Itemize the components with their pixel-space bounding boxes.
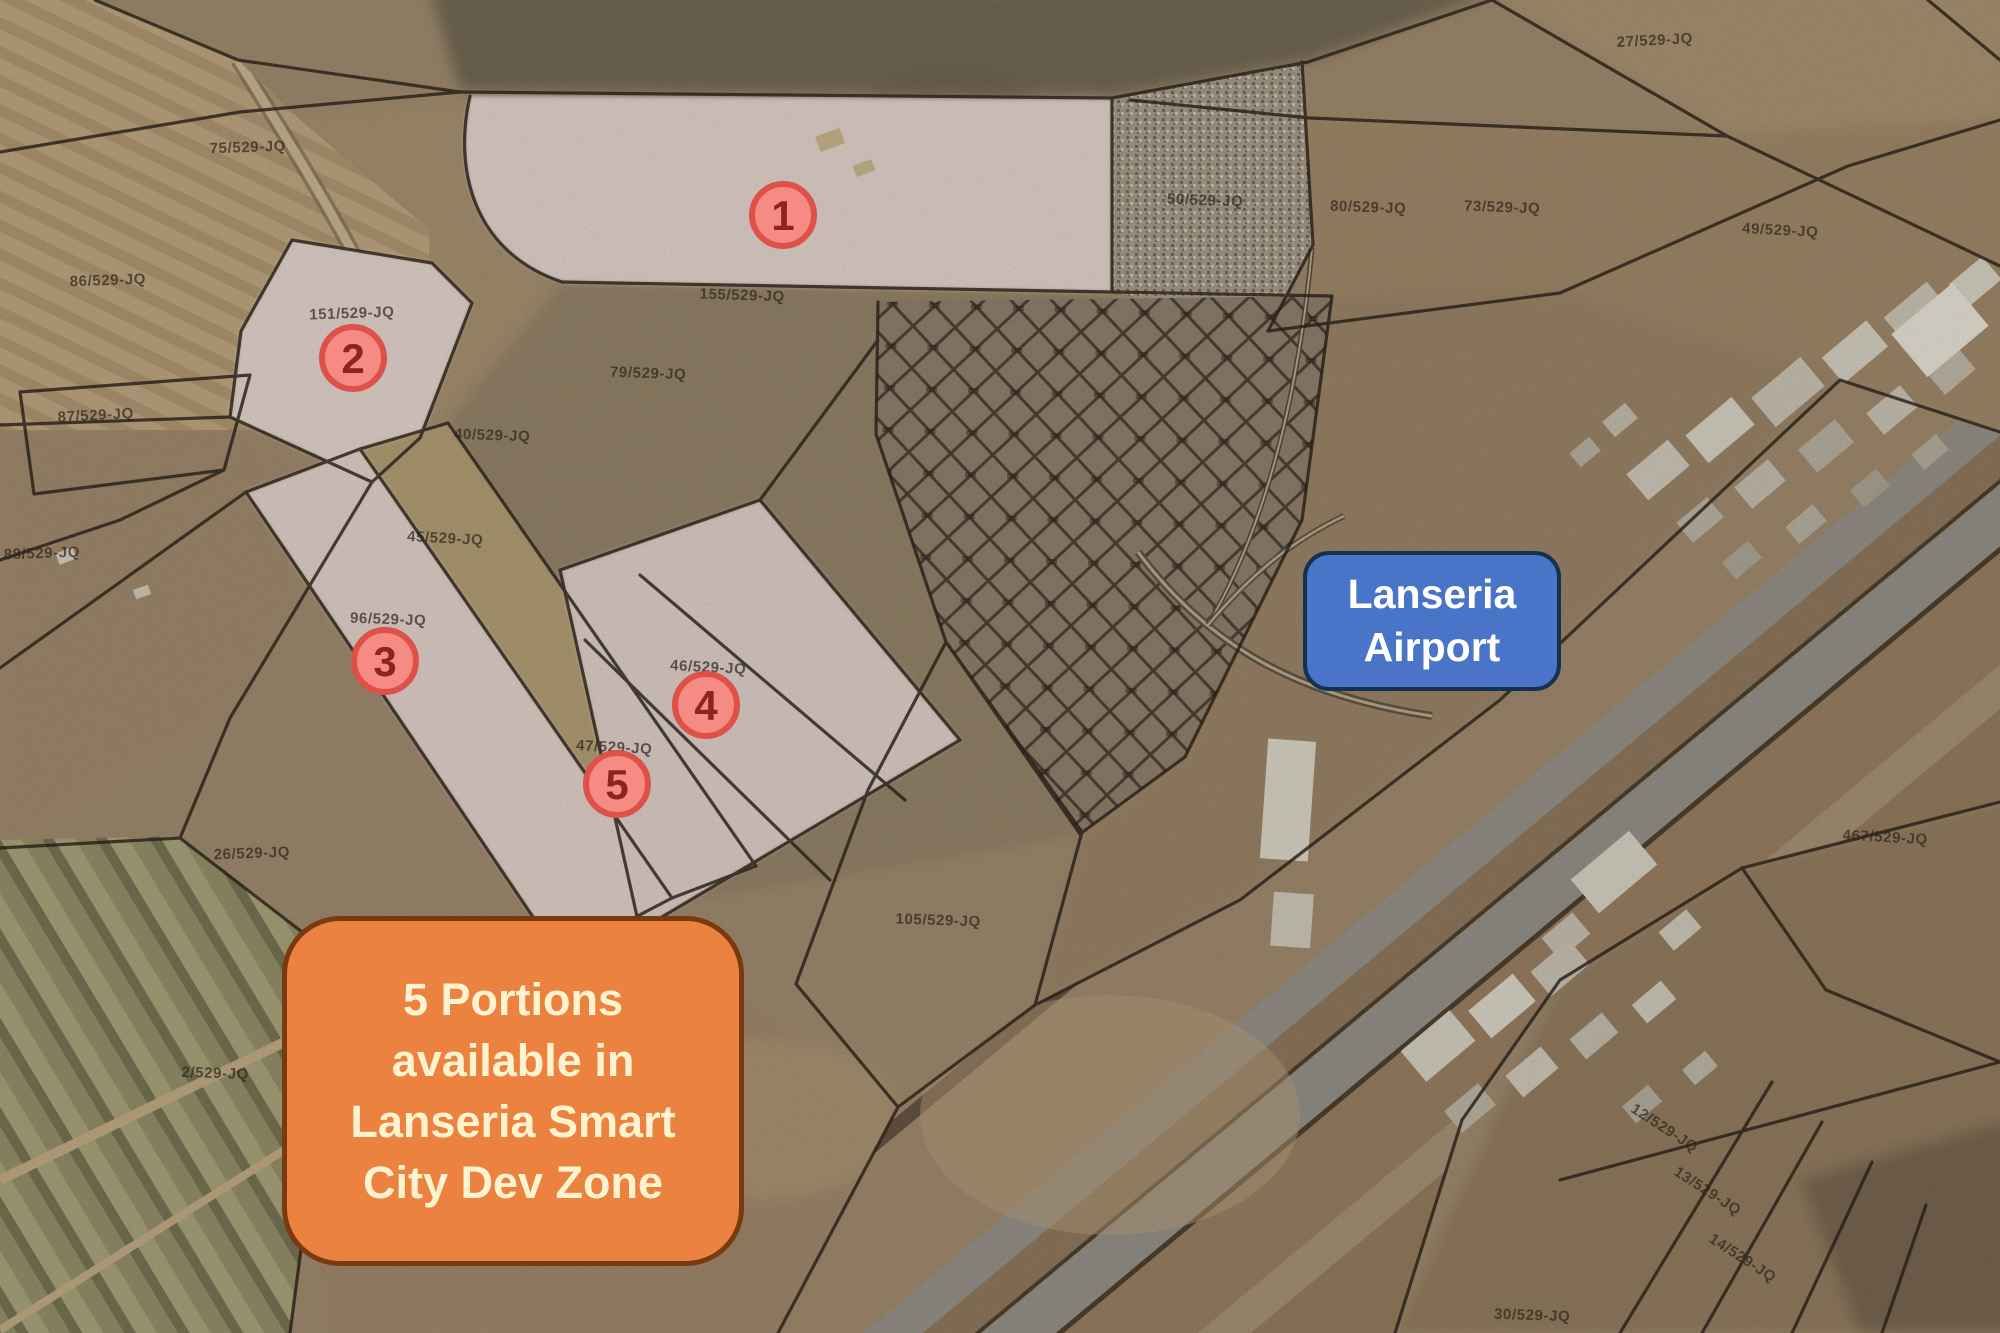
airport-label-line2: Airport [1364,621,1501,674]
info-box-line: Lanseria Smart [350,1091,675,1152]
info-box-line: City Dev Zone [363,1152,663,1213]
marker-number: 2 [341,335,364,382]
info-box-line: 5 Portions [403,969,623,1030]
portion-marker-2: 2 [322,327,384,389]
portion-marker-3: 3 [354,630,416,692]
info-box-line: available in [392,1030,635,1091]
marker-number: 4 [694,682,718,729]
airport-label-line1: Lanseria [1348,568,1517,621]
portion-marker-5: 5 [586,753,648,815]
portions-info-box: 5 Portions available in Lanseria Smart C… [282,916,744,1266]
portion-marker-4: 4 [675,674,737,736]
map-screenshot: 75/529-JQ86/529-JQ87/529-JQ88/529-JQ151/… [0,0,2000,1333]
marker-number: 3 [373,638,396,685]
marker-number: 5 [605,761,628,808]
airport-label-box: Lanseria Airport [1303,551,1561,691]
portion-marker-1: 1 [752,184,814,246]
marker-number: 1 [771,192,794,239]
